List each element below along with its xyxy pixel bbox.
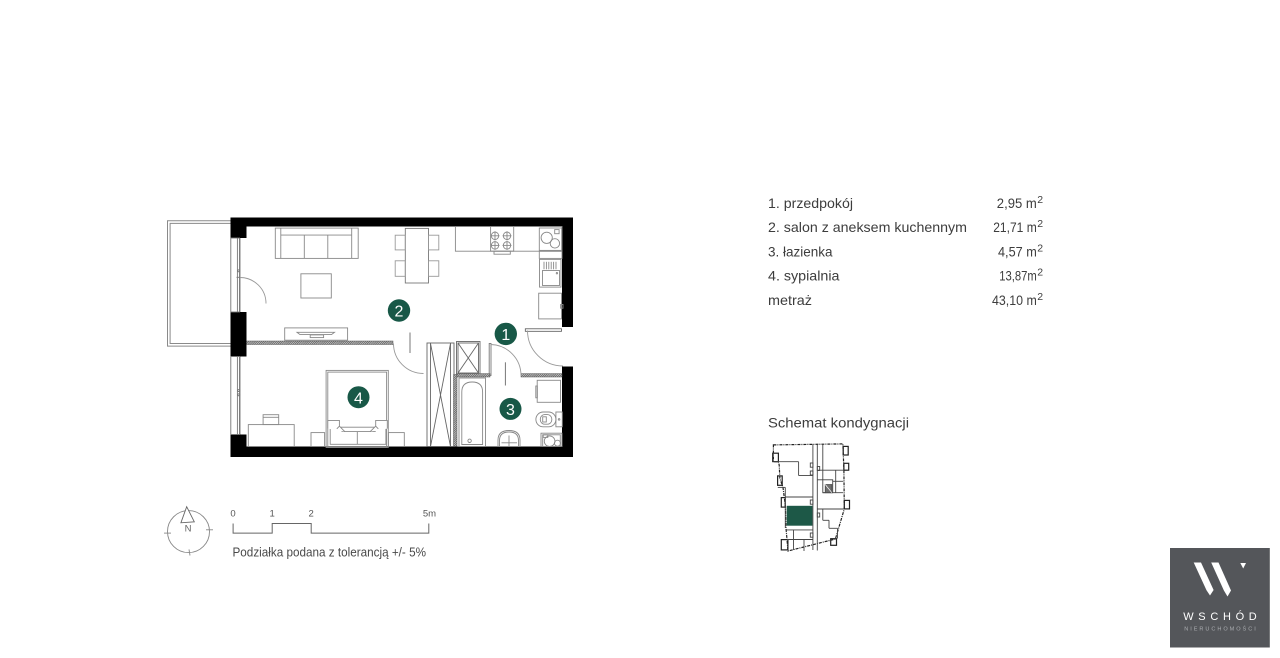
svg-text:2: 2: [1037, 218, 1043, 230]
svg-text:0: 0: [230, 509, 235, 520]
svg-text:NIERUCHOMOŚCI: NIERUCHOMOŚCI: [1184, 625, 1256, 633]
svg-text:3. łazienka: 3. łazienka: [768, 243, 833, 259]
svg-text:4: 4: [354, 390, 363, 407]
svg-text:1. przedpokój: 1. przedpokój: [768, 195, 853, 211]
svg-text:Podziałka podana z tolerancją: Podziałka podana z tolerancją +/- 5%: [233, 545, 427, 559]
svg-text:43,10 m: 43,10 m: [992, 292, 1037, 308]
svg-text:21,71 m: 21,71 m: [993, 219, 1037, 235]
svg-text:2. salon z aneksem kuchennym: 2. salon z aneksem kuchennym: [768, 219, 967, 235]
svg-text:2: 2: [309, 509, 314, 520]
svg-text:1: 1: [501, 327, 510, 344]
svg-text:metraż: metraż: [768, 292, 812, 308]
svg-text:2: 2: [1037, 267, 1043, 279]
svg-text:N: N: [185, 524, 192, 535]
svg-text:2: 2: [395, 304, 404, 321]
svg-text:4. sypialnia: 4. sypialnia: [768, 268, 840, 284]
svg-text:3: 3: [506, 402, 515, 419]
svg-text:5m: 5m: [423, 509, 436, 520]
svg-text:2: 2: [1037, 242, 1043, 254]
svg-text:1: 1: [270, 509, 275, 520]
svg-text:4,57 m: 4,57 m: [998, 243, 1037, 259]
svg-text:Schemat kondygnacji: Schemat kondygnacji: [768, 416, 909, 432]
svg-text:13,87m: 13,87m: [999, 268, 1037, 284]
svg-text:2: 2: [1037, 291, 1043, 303]
svg-text:2: 2: [1037, 194, 1043, 206]
svg-text:2,95 m: 2,95 m: [997, 195, 1037, 211]
